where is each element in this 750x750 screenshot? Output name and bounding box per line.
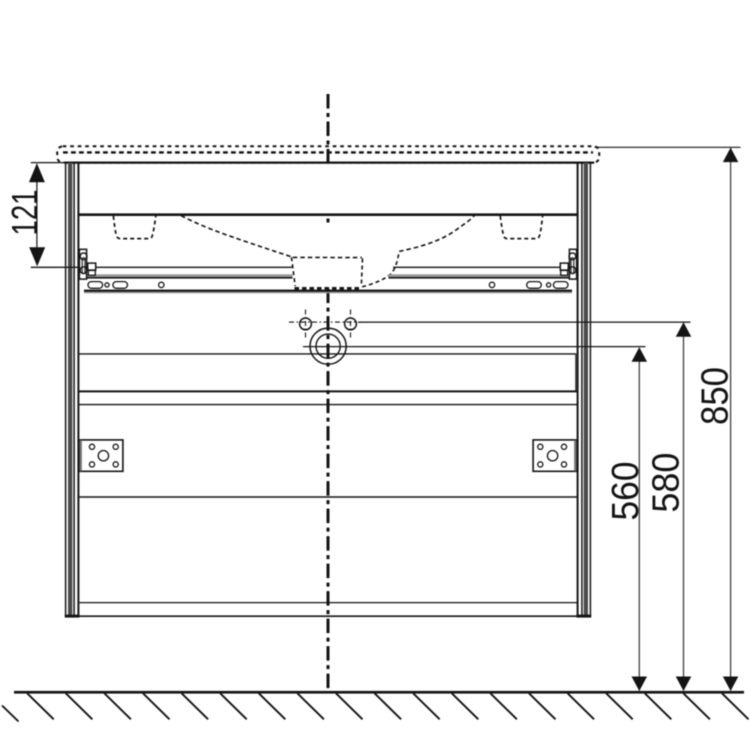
svg-text:850: 850 xyxy=(695,367,737,425)
svg-text:580: 580 xyxy=(646,453,688,513)
svg-text:121: 121 xyxy=(4,190,45,236)
svg-text:560: 560 xyxy=(605,462,647,521)
